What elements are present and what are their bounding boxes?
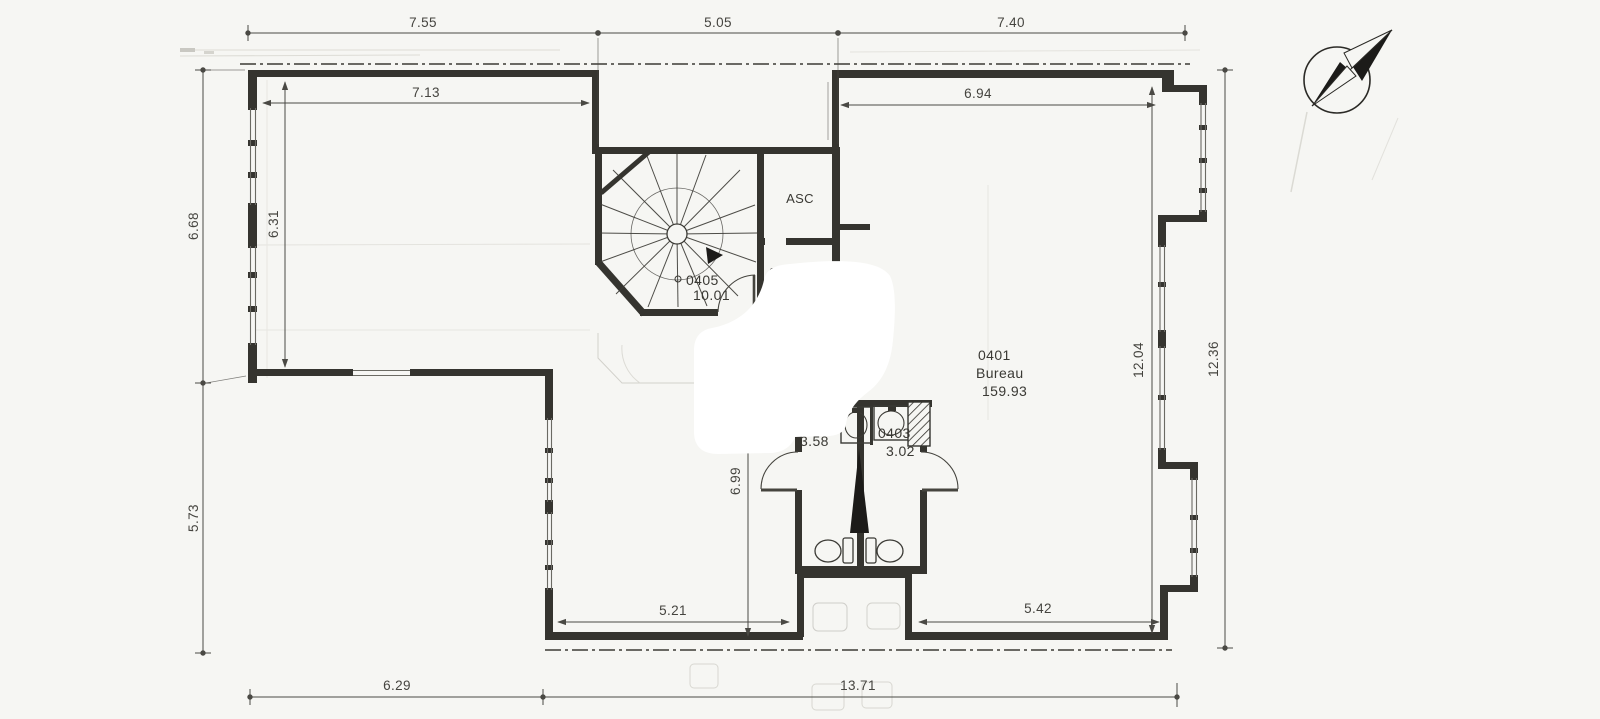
room-number-stair: 0405	[686, 272, 719, 288]
dim-bottom-left: 6.29	[383, 678, 411, 693]
dim-left-inner: 6.31	[266, 210, 281, 238]
dim-top-right: 7.40	[997, 15, 1025, 30]
dim-top-mid: 5.05	[704, 15, 732, 30]
dim-center-vert: 6.99	[728, 467, 743, 495]
room-name-bureau: Bureau	[976, 365, 1024, 381]
dim-left-lower: 5.73	[186, 504, 201, 532]
dim-bottom-inner-left: 5.21	[659, 603, 687, 618]
dim-inner-top-right: 6.94	[964, 86, 992, 101]
room-area-wc-right: 3.02	[886, 443, 915, 459]
floor-plan-scan: 7.55 5.05 7.40 7.13 6.94 6.68 6.31 5.73 …	[0, 0, 1600, 719]
room-area-bureau: 159.93	[982, 383, 1027, 399]
room-number-wc-right: 0403	[878, 425, 911, 441]
dim-left-upper: 6.68	[186, 212, 201, 240]
dim-bottom-inner-right: 5.42	[1024, 601, 1052, 616]
room-area-stair: 10.01	[693, 287, 730, 303]
room-number-bureau: 0401	[978, 347, 1011, 363]
dim-top-left: 7.55	[409, 15, 437, 30]
dim-inner-top-left: 7.13	[412, 85, 440, 100]
floor-plan-svg: 7.55 5.05 7.40 7.13 6.94 6.68 6.31 5.73 …	[0, 0, 1600, 719]
dim-right-inner: 12.04	[1131, 342, 1146, 378]
hatched-wall	[908, 402, 930, 446]
dim-right-outer: 12.36	[1206, 341, 1221, 377]
dim-bottom-right: 13.71	[840, 678, 876, 693]
room-label-elevator: ASC	[786, 191, 814, 206]
